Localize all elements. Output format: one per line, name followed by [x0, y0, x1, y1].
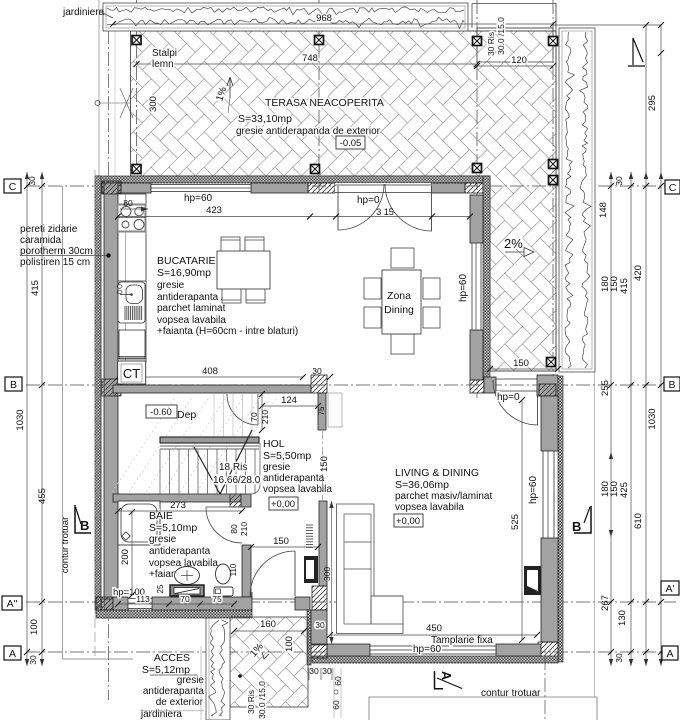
svg-text:S=5,50mp: S=5,50mp [263, 450, 311, 462]
svg-text:BUCATARIE: BUCATARIE [157, 255, 216, 267]
svg-text:-0.05: -0.05 [340, 138, 362, 149]
svg-text:Tamplarie fixa: Tamplarie fixa [431, 635, 493, 646]
svg-text:30: 30 [322, 666, 332, 676]
svg-text:273: 273 [170, 500, 186, 511]
svg-text:hp=60: hp=60 [528, 476, 539, 505]
svg-text:A: A [9, 648, 16, 660]
svg-text:16.66/28.0: 16.66/28.0 [213, 475, 261, 486]
svg-text:80: 80 [229, 524, 239, 534]
svg-text:30: 30 [312, 366, 322, 376]
svg-text:130: 130 [617, 610, 628, 626]
svg-text:TERASA NEACOPERITA: TERASA NEACOPERITA [265, 97, 384, 109]
svg-text:267: 267 [600, 595, 611, 611]
svg-text:148: 148 [598, 202, 609, 218]
svg-text:gresie antiderapanda de exteri: gresie antiderapanda de exterior [236, 126, 381, 137]
svg-text:B: B [668, 379, 675, 391]
svg-text:pereti zidarie: pereti zidarie [20, 224, 78, 235]
svg-text:30.0 /15.0: 30.0 /15.0 [496, 17, 506, 55]
svg-text:parchet masiv/laminat: parchet masiv/laminat [395, 491, 492, 502]
svg-text:C: C [9, 181, 17, 193]
svg-text:295: 295 [647, 95, 658, 111]
svg-text:hp=0: hp=0 [357, 195, 380, 206]
svg-text:30: 30 [309, 666, 319, 676]
svg-text:BAIE: BAIE [149, 510, 173, 522]
svg-text:contur trotuar: contur trotuar [60, 517, 71, 574]
svg-text:A: A [439, 671, 453, 680]
svg-text:100: 100 [284, 636, 295, 652]
svg-text:antiderapanta: antiderapanta [263, 473, 325, 484]
svg-text:vopsea lavabila: vopsea lavabila [395, 502, 464, 513]
svg-text:408: 408 [202, 366, 218, 377]
svg-text:110: 110 [229, 563, 238, 576]
svg-text:gresie: gresie [149, 534, 177, 545]
svg-text:jardiniera: jardiniera [62, 7, 105, 18]
svg-text:3 15: 3 15 [376, 207, 394, 217]
svg-text:gresie: gresie [263, 462, 291, 473]
svg-text:60: 60 [333, 676, 343, 686]
svg-text:+0,00: +0,00 [396, 516, 420, 527]
svg-text:gresie: gresie [157, 280, 185, 291]
svg-text:gresie: gresie [177, 675, 205, 686]
svg-text:18 Ris: 18 Ris [219, 462, 247, 473]
svg-text:100: 100 [29, 619, 40, 635]
svg-text:A': A' [665, 583, 674, 595]
svg-text:60: 60 [331, 700, 341, 710]
svg-text:75: 75 [212, 594, 222, 604]
svg-text:hp=60: hp=60 [184, 193, 213, 204]
svg-text:300: 300 [322, 567, 332, 581]
svg-text:150: 150 [513, 358, 529, 369]
svg-text:Stalpi: Stalpi [152, 48, 177, 59]
svg-text:300: 300 [148, 96, 159, 112]
svg-text:C: C [669, 182, 677, 194]
svg-text:450: 450 [426, 623, 442, 634]
svg-text:HOL: HOL [263, 438, 285, 450]
svg-text:30: 30 [614, 653, 624, 663]
svg-text:S=36,06mp: S=36,06mp [395, 479, 449, 491]
svg-text:de exterior: de exterior [156, 697, 204, 708]
svg-text:420: 420 [633, 265, 644, 281]
svg-text:B: B [80, 518, 89, 533]
svg-text:LIVING & DINING: LIVING & DINING [395, 467, 479, 479]
svg-text:1030: 1030 [647, 408, 658, 429]
svg-text:30: 30 [315, 620, 325, 630]
svg-text:30: 30 [614, 176, 624, 186]
svg-text:610: 610 [633, 513, 644, 529]
svg-text:75: 75 [317, 406, 326, 415]
svg-text:parchet laminat: parchet laminat [157, 303, 226, 314]
svg-text:lemn: lemn [152, 59, 174, 70]
svg-text:hp=0: hp=0 [497, 392, 520, 403]
svg-text:455: 455 [37, 488, 48, 504]
svg-text:+0,00: +0,00 [271, 499, 295, 510]
svg-text:255: 255 [600, 380, 611, 396]
svg-text:B: B [572, 519, 581, 534]
svg-text:+faianta (H=60cm - intre blatu: +faianta (H=60cm - intre blaturi) [157, 326, 298, 337]
svg-text:160: 160 [260, 619, 276, 630]
svg-text:70: 70 [180, 594, 190, 604]
svg-text:polistiren 15 cm: polistiren 15 cm [20, 257, 90, 268]
svg-text:antiderapanta /: antiderapanta / [157, 292, 224, 303]
svg-text:S=33,10mp: S=33,10mp [238, 113, 292, 125]
svg-text:1030: 1030 [15, 409, 26, 430]
svg-text:200: 200 [120, 549, 131, 565]
svg-text:425: 425 [619, 482, 630, 498]
svg-text:Dining: Dining [384, 304, 414, 316]
svg-text:30.0 /15.0: 30.0 /15.0 [257, 681, 267, 719]
svg-text:A": A" [7, 598, 18, 610]
svg-text:caramida: caramida [20, 235, 62, 246]
svg-text:S=5,10mp: S=5,10mp [149, 522, 197, 534]
svg-text:B: B [10, 379, 17, 391]
svg-text:vopsea lavabila: vopsea lavabila [157, 315, 226, 326]
svg-text:968: 968 [316, 13, 332, 24]
svg-text:antiderapanta: antiderapanta [143, 686, 205, 697]
svg-text:150: 150 [319, 456, 330, 472]
svg-text:antiderapanta: antiderapanta [149, 546, 211, 557]
svg-text:124: 124 [281, 395, 297, 406]
svg-text:748: 748 [302, 53, 318, 64]
svg-text:423: 423 [206, 205, 222, 216]
svg-text:hp=60: hp=60 [458, 274, 469, 303]
svg-text:30: 30 [28, 655, 38, 665]
svg-text:415: 415 [619, 278, 630, 294]
svg-text:30: 30 [27, 176, 37, 186]
svg-text:vopsea lavabila: vopsea lavabila [263, 484, 332, 495]
svg-text:30 Ris: 30 Ris [246, 690, 256, 714]
svg-text:210: 210 [260, 410, 270, 424]
svg-text:2%: 2% [504, 236, 523, 251]
svg-text:CT: CT [123, 366, 140, 381]
svg-text:25: 25 [156, 584, 165, 593]
svg-text:70: 70 [249, 412, 259, 422]
svg-text:S=16,90mp: S=16,90mp [157, 267, 211, 279]
svg-text:Zona: Zona [387, 290, 411, 302]
svg-text:415: 415 [30, 280, 41, 296]
svg-text:113: 113 [136, 594, 150, 604]
svg-text:30 Ris: 30 Ris [486, 32, 496, 56]
svg-text:A: A [666, 648, 673, 660]
svg-text:210: 210 [239, 522, 249, 536]
svg-text:150: 150 [273, 536, 289, 547]
svg-text:-0.60: -0.60 [150, 407, 172, 418]
svg-text:525: 525 [510, 514, 521, 530]
svg-text:ACCES: ACCES [154, 652, 190, 664]
svg-text:120: 120 [511, 55, 527, 66]
svg-text:80: 80 [123, 198, 133, 208]
